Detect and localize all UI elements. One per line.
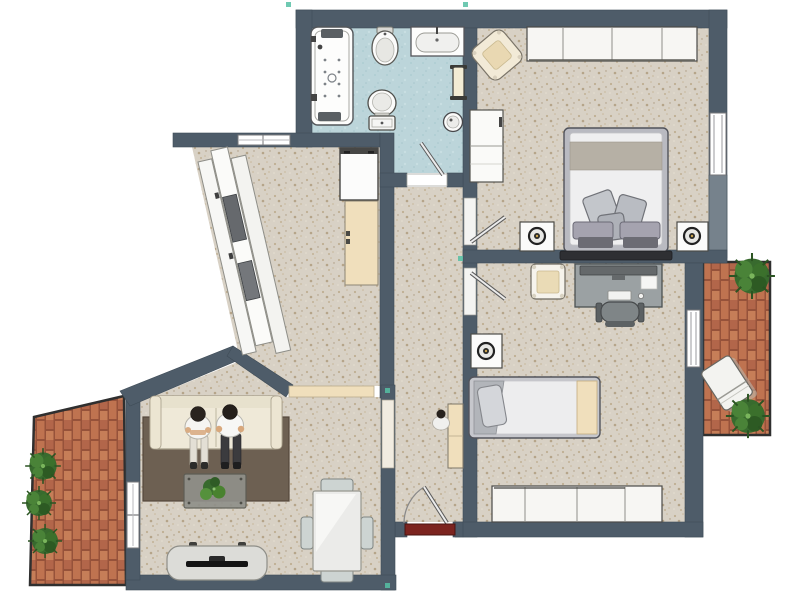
plant-icon xyxy=(729,253,775,299)
chair-top xyxy=(321,479,353,492)
corridor-floor xyxy=(394,187,463,522)
wall-segment-light xyxy=(709,175,727,258)
wall-top xyxy=(296,10,727,28)
bathroom-door-sill xyxy=(407,174,447,186)
wall-bath-left xyxy=(296,10,312,147)
towel-radiator-icon xyxy=(450,65,467,100)
bedroom-wardrobe xyxy=(527,27,697,61)
wall-office-right xyxy=(685,263,703,537)
desk xyxy=(575,264,662,307)
corner-washbasin-icon xyxy=(444,113,463,132)
plant-icon xyxy=(25,448,61,484)
coffee-table xyxy=(184,474,246,508)
mouse-icon xyxy=(638,293,643,298)
fridge-icon xyxy=(340,148,378,200)
living-room-window xyxy=(127,482,139,548)
floor-plan-page xyxy=(0,0,800,600)
headboard xyxy=(560,251,672,260)
kitchen-tall-cabinet xyxy=(345,201,378,285)
nightstand-right xyxy=(677,222,708,251)
balcony-left-items xyxy=(22,448,62,558)
keyboard-icon xyxy=(608,291,631,300)
office-nightstand xyxy=(471,334,502,368)
head xyxy=(223,405,238,420)
wall-bath-bottom-b xyxy=(447,173,463,187)
plant-icon xyxy=(28,524,62,558)
office-balcony-window xyxy=(687,310,700,367)
kitchen-window xyxy=(238,135,290,145)
head xyxy=(437,410,446,419)
coat-closet xyxy=(448,404,463,468)
plant-icon xyxy=(22,486,56,520)
wall-bath-bottom-a xyxy=(380,173,407,187)
entrance-door-sill xyxy=(405,524,455,535)
toilet-icon xyxy=(368,90,396,130)
double-bed xyxy=(560,128,672,260)
washbasin-icon xyxy=(411,27,464,56)
whirlpool-bathtub-icon xyxy=(311,27,353,125)
office-wardrobe xyxy=(492,486,662,522)
floor-plan xyxy=(0,0,800,600)
plant-icon xyxy=(726,394,770,438)
head xyxy=(191,407,206,422)
chair-right xyxy=(361,517,373,549)
paper-icon xyxy=(641,276,657,289)
monitor-icon xyxy=(580,266,657,275)
bedroom-dresser xyxy=(470,110,503,182)
office-side-chair xyxy=(531,264,565,299)
nightstand-left xyxy=(520,222,554,251)
wall-office-bottom xyxy=(455,522,703,537)
living-hall-opening xyxy=(382,400,394,468)
bedroom-window xyxy=(710,113,726,175)
single-bed xyxy=(469,377,600,438)
tv-icon xyxy=(186,561,248,567)
sofa xyxy=(150,396,282,449)
tv-stand xyxy=(167,542,267,580)
kitchen-living-passage-sill xyxy=(289,386,374,397)
chair-left xyxy=(301,517,313,549)
